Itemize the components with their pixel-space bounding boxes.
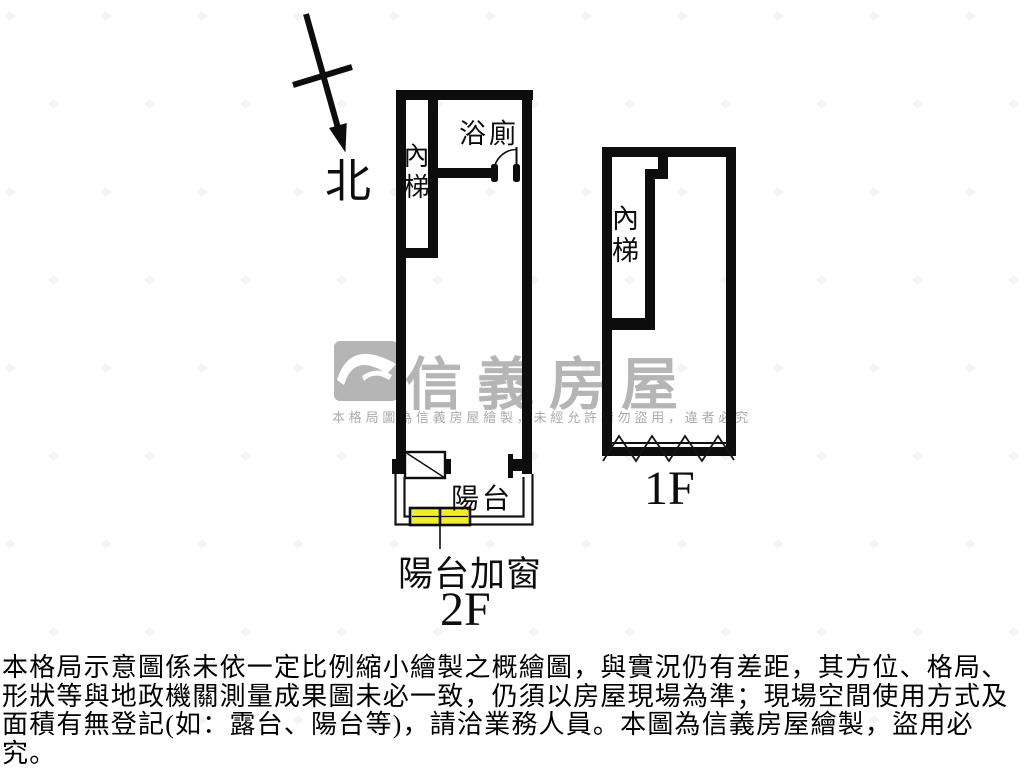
door-jamb-right — [513, 164, 520, 182]
floor-label-2f: 2F — [440, 582, 491, 637]
balcony-label: 陽台 — [451, 477, 513, 517]
floor-plan-1f — [602, 147, 736, 461]
disclaimer-line: 形狀等與地政機關測量成果圖未必一致，仍須以房屋現場為準；現場空間使用方式及 — [2, 683, 1022, 712]
floor-label-1f: 1F — [644, 461, 695, 516]
north-arrow-icon — [293, 14, 352, 151]
bathroom-label: 浴廁 — [459, 112, 519, 151]
north-label: 北 — [325, 145, 371, 211]
sinyi-logo-icon — [334, 341, 398, 401]
walls-1f — [602, 147, 736, 456]
disclaimer-line: 本格局示意圖係未依一定比例縮小繪製之概繪圖，與實況仍有差距，其方位、格局、 — [2, 654, 1022, 683]
disclaimer-line: 面積有無登記(如：露台、陽台等)，請洽業務人員。本圖為信義房屋繪製，盜用必究。 — [2, 711, 1022, 768]
balcony-opening-window-icon — [405, 452, 445, 478]
stairs-label-2f: 內梯 — [401, 142, 427, 204]
stairs-label-1f: 內梯 — [609, 204, 636, 268]
disclaimer-paragraph: 本格局示意圖係未依一定比例縮小繪製之概繪圖，與實況仍有差距，其方位、格局、 形狀… — [2, 654, 1022, 768]
